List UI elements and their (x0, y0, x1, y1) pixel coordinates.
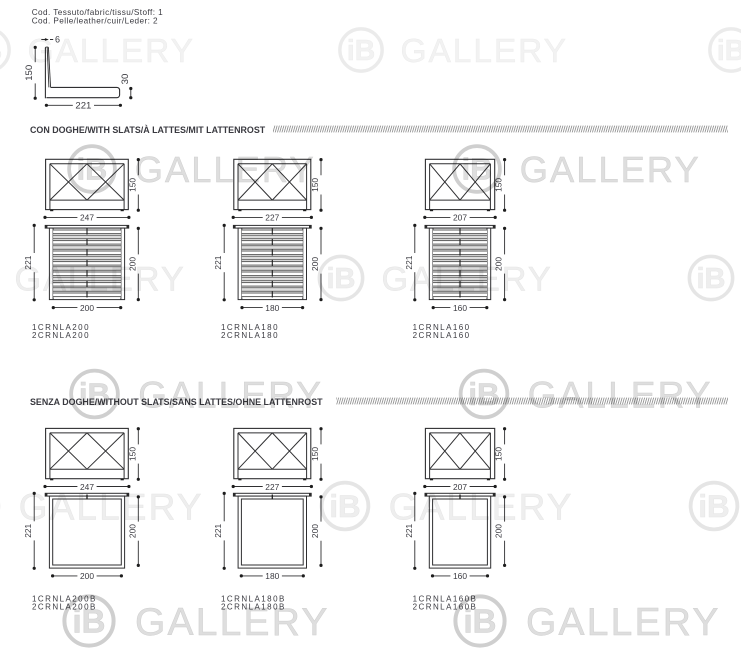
svg-text:180: 180 (265, 571, 279, 581)
svg-text:Cod. Pelle/leather/cuir/Leder:: Cod. Pelle/leather/cuir/Leder: 2 (32, 16, 158, 25)
svg-text:iB: iB (698, 489, 729, 524)
svg-text:iB: iB (462, 152, 493, 187)
svg-text:2CRNLA200: 2CRNLA200 (32, 331, 90, 340)
svg-text:GALLERY: GALLERY (19, 485, 204, 527)
svg-text:227: 227 (265, 213, 279, 223)
svg-text:iB: iB (347, 35, 375, 67)
svg-text:247: 247 (80, 213, 94, 223)
svg-text:221: 221 (213, 255, 223, 269)
svg-text:221: 221 (75, 101, 91, 112)
svg-text:iB: iB (79, 377, 110, 412)
svg-text:GALLERY: GALLERY (135, 149, 316, 190)
svg-text:150: 150 (494, 447, 504, 461)
svg-text:GALLERY: GALLERY (401, 33, 568, 70)
svg-text:GALLERY: GALLERY (381, 260, 552, 298)
svg-text:iB: iB (73, 603, 106, 640)
svg-text:iB: iB (329, 489, 360, 524)
svg-text:iB: iB (717, 35, 741, 67)
svg-text:207: 207 (453, 213, 467, 223)
svg-text:200: 200 (310, 257, 320, 271)
svg-text:iB: iB (0, 35, 2, 67)
svg-text:150: 150 (127, 447, 137, 461)
svg-text:160: 160 (453, 571, 467, 581)
svg-text:227: 227 (265, 482, 279, 492)
svg-text:200: 200 (80, 571, 94, 581)
svg-text:CON DOGHE/WITH SLATS/À LATTES/: CON DOGHE/WITH SLATS/À LATTES/MIT LATTEN… (30, 125, 266, 135)
svg-text:180: 180 (265, 303, 279, 313)
svg-text:200: 200 (310, 524, 320, 538)
svg-text:30: 30 (120, 74, 131, 85)
svg-text:GALLERY: GALLERY (138, 373, 323, 415)
svg-text:GALLERY: GALLERY (14, 260, 185, 298)
svg-text:iB: iB (77, 152, 108, 187)
svg-text:iB: iB (696, 263, 725, 295)
svg-text:221: 221 (213, 523, 223, 537)
svg-text:160: 160 (453, 303, 467, 313)
svg-text:GALLERY: GALLERY (520, 149, 701, 190)
svg-text:iB: iB (326, 263, 355, 295)
svg-text:iB: iB (468, 377, 499, 412)
svg-text:GALLERY: GALLERY (526, 601, 721, 644)
svg-text:200: 200 (80, 303, 94, 313)
svg-text:GALLERY: GALLERY (528, 373, 713, 415)
svg-text:GALLERY: GALLERY (135, 601, 330, 644)
svg-text:GALLERY: GALLERY (389, 485, 574, 527)
svg-text:iB: iB (464, 603, 497, 640)
svg-text:2CRNLA160: 2CRNLA160 (413, 331, 471, 340)
svg-text:GALLERY: GALLERY (28, 33, 195, 70)
svg-text:150: 150 (310, 447, 320, 461)
svg-text:2CRNLA180: 2CRNLA180 (221, 331, 279, 340)
